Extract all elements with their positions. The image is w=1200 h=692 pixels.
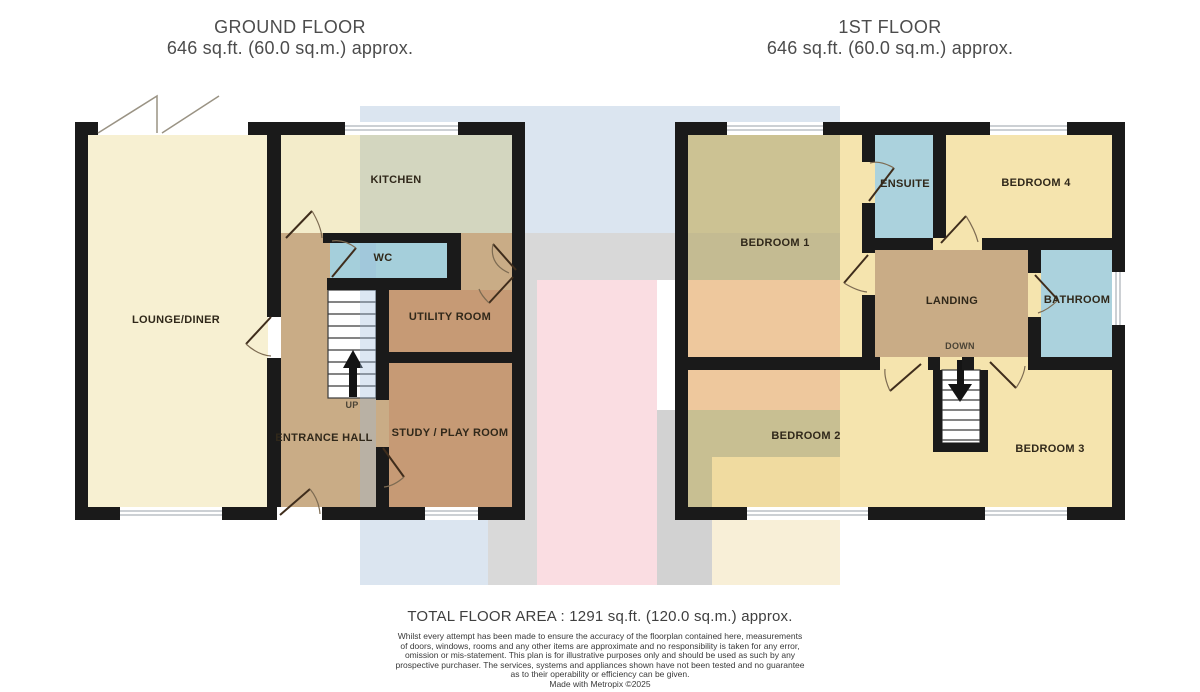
total-floor-area: TOTAL FLOOR AREA : 1291 sq.ft. (120.0 sq… — [0, 608, 1200, 625]
room-label-kitchen: KITCHEN — [371, 174, 422, 186]
room-label-bedroom4: BEDROOM 4 — [1001, 177, 1070, 189]
room-label-bathroom: BATHROOM — [1044, 294, 1110, 306]
floorplan-drawing — [0, 0, 1200, 692]
footer: TOTAL FLOOR AREA : 1291 sq.ft. (120.0 sq… — [0, 608, 1200, 689]
room-label-study: STUDY / PLAY ROOM — [392, 427, 509, 439]
ground-floor-plan — [75, 96, 525, 520]
floorplan-page: GROUND FLOOR 646 sq.ft. (60.0 sq.m.) app… — [0, 0, 1200, 692]
room-label-utility: UTILITY ROOM — [409, 311, 491, 323]
bedroom1-room — [688, 135, 840, 233]
bedroom2-room — [688, 370, 840, 410]
room-label-hall: ENTRANCE HALL — [275, 432, 372, 444]
room-label-ensuite: ENSUITE — [880, 178, 930, 190]
room-label-bedroom2: BEDROOM 2 — [771, 430, 840, 442]
stair-label-up: UP — [345, 400, 358, 410]
room-label-lounge: LOUNGE/DINER — [132, 314, 220, 326]
room-label-wc: WC — [374, 252, 393, 264]
bifold-door-icon — [98, 96, 219, 133]
stair-label-down: DOWN — [945, 341, 975, 351]
room-label-landing: LANDING — [926, 295, 978, 307]
room-label-bedroom1: BEDROOM 1 — [740, 237, 809, 249]
metropix-credit: Made with Metropix ©2025 — [0, 680, 1200, 690]
room-label-bedroom3: BEDROOM 3 — [1015, 443, 1084, 455]
staircase-down — [942, 360, 980, 443]
